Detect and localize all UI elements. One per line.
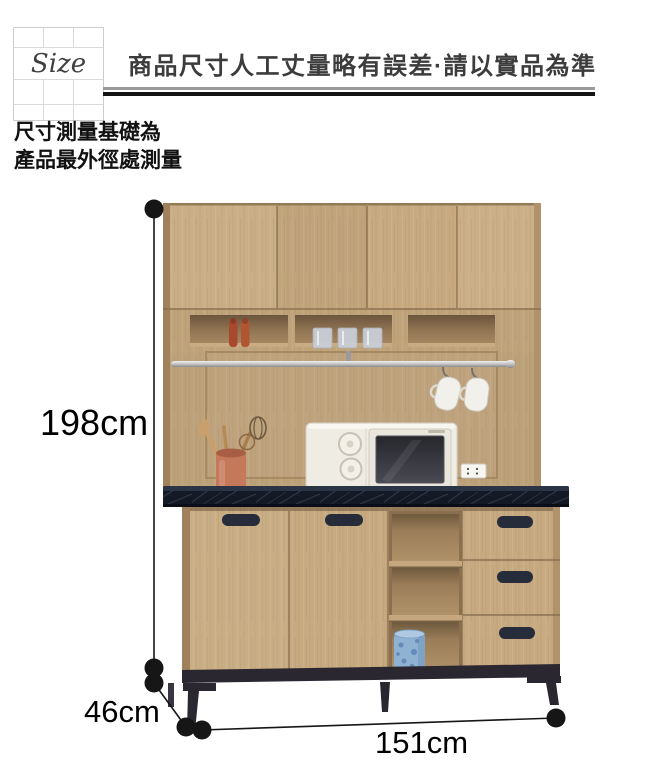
open-shelf-column bbox=[389, 511, 462, 672]
base-cabinet bbox=[182, 507, 560, 683]
furniture-illustration bbox=[0, 0, 650, 762]
drinking-glasses bbox=[313, 328, 382, 348]
niche-shelves bbox=[170, 310, 534, 352]
legs bbox=[168, 676, 561, 731]
width-dimension-line bbox=[202, 718, 556, 730]
countertop bbox=[163, 486, 569, 507]
blue-jar bbox=[394, 630, 425, 672]
power-outlet bbox=[461, 464, 486, 478]
